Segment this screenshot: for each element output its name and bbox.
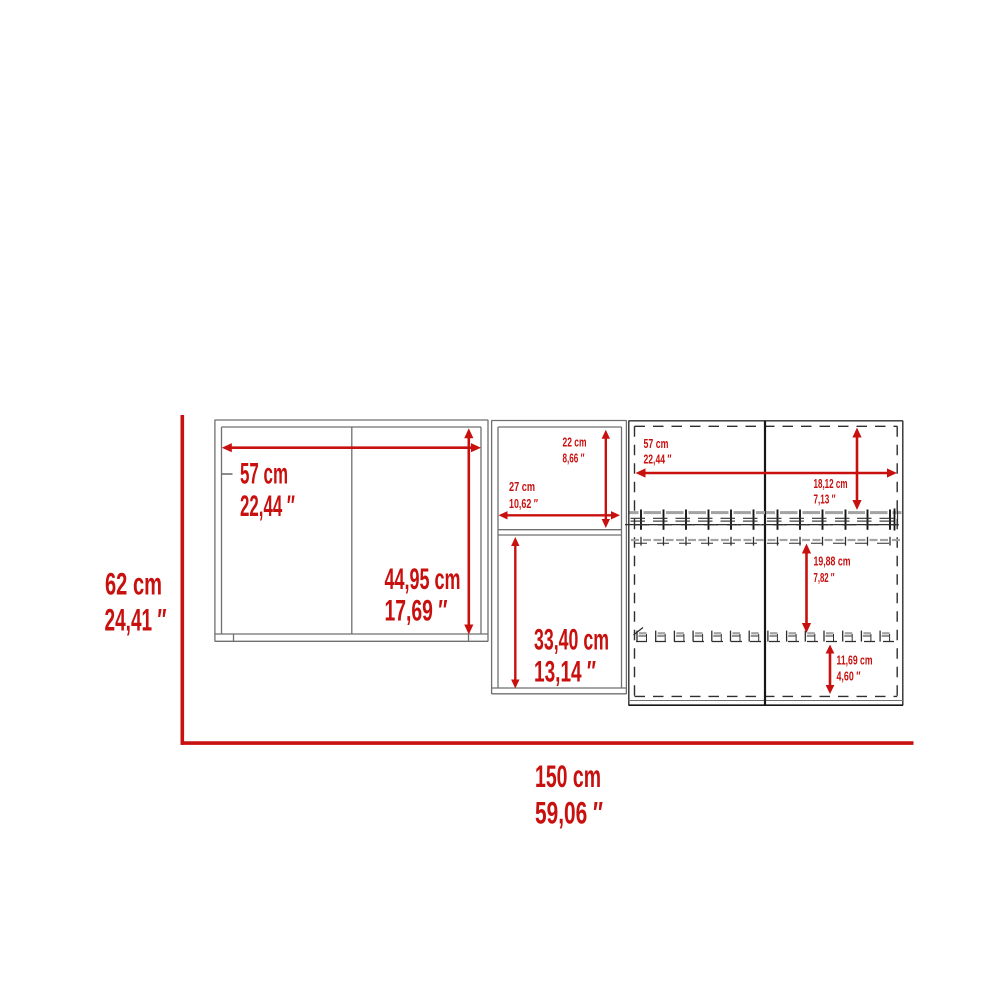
svg-text:59,06 ″: 59,06 ″ <box>535 795 603 831</box>
svg-text:57 cm: 57 cm <box>240 457 288 490</box>
svg-text:24,41 ″: 24,41 ″ <box>105 602 167 638</box>
svg-text:150 cm: 150 cm <box>535 758 601 794</box>
svg-text:18,12 cm: 18,12 cm <box>814 476 848 491</box>
svg-text:13,14 ″: 13,14 ″ <box>534 655 596 688</box>
svg-text:27 cm: 27 cm <box>509 479 535 494</box>
svg-text:57 cm: 57 cm <box>644 436 669 451</box>
svg-text:62 cm: 62 cm <box>105 566 162 602</box>
svg-text:22,44 ″: 22,44 ″ <box>644 452 672 467</box>
svg-text:7,82 ″: 7,82 ″ <box>814 570 835 585</box>
svg-text:22,44 ″: 22,44 ″ <box>240 490 295 523</box>
svg-text:33,40 cm: 33,40 cm <box>534 624 609 657</box>
svg-text:4,60 ″: 4,60 ″ <box>837 669 861 684</box>
svg-text:17,69 ″: 17,69 ″ <box>385 594 448 627</box>
svg-text:7,13 ″: 7,13 ″ <box>814 492 836 507</box>
svg-text:8,66 ″: 8,66 ″ <box>563 451 585 466</box>
svg-text:19,88 cm: 19,88 cm <box>814 554 851 569</box>
svg-text:10,62 ″: 10,62 ″ <box>509 496 538 511</box>
svg-text:44,95 cm: 44,95 cm <box>385 563 461 596</box>
svg-text:22 cm: 22 cm <box>563 435 587 450</box>
svg-text:11,69 cm: 11,69 cm <box>837 653 873 668</box>
